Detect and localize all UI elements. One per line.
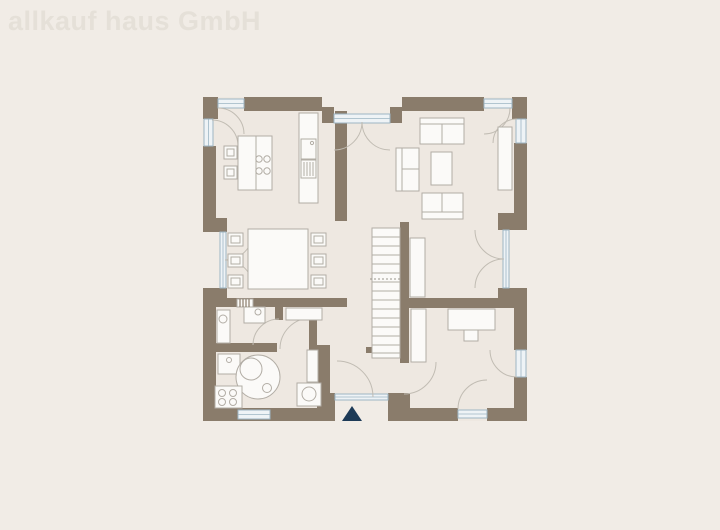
wall-bottom-office-right: [487, 408, 527, 421]
wall-left-lower: [203, 301, 216, 421]
wall-kitchen-right: [335, 111, 347, 221]
wall-step-top-center-left: [322, 107, 334, 123]
dishwasher: [301, 160, 316, 178]
dining-area: [228, 229, 326, 289]
wall-right-upper: [514, 143, 527, 213]
wall-left-upper: [203, 146, 216, 218]
wall-office-left-stub: [400, 393, 409, 408]
wall-utility-bottom: [216, 343, 277, 352]
washing-machine: [297, 383, 321, 406]
stair-section-marker: [366, 347, 372, 353]
radiator: [307, 350, 318, 382]
office-desk: [448, 309, 495, 330]
wall-top-right: [402, 97, 484, 111]
wall-stairs-right: [400, 222, 409, 363]
wall-corner-top-right: [512, 97, 527, 119]
dining-table: [248, 229, 308, 289]
wall-post-left-upper: [203, 218, 227, 232]
sideboard: [498, 127, 512, 190]
wall-office-top: [409, 298, 527, 308]
hall-cabinet: [410, 238, 425, 297]
wall-post-right-upper: [498, 213, 527, 230]
wall-utility-right-stub: [275, 307, 283, 320]
bar-stool: [224, 146, 237, 159]
coffee-table: [431, 152, 452, 185]
utility-washer: [244, 307, 265, 323]
stair-body: [372, 228, 400, 358]
office-chair: [464, 330, 478, 341]
wall-step-top-center-right: [390, 107, 402, 123]
kitchen-island: [238, 136, 272, 190]
staircase: [370, 228, 402, 358]
floor-plan-canvas: allkauf haus GmbH: [0, 0, 720, 530]
bar-stool: [224, 166, 237, 179]
utility-counter: [286, 308, 322, 320]
wall-bath-door-stub: [309, 320, 317, 352]
office-wardrobe: [411, 309, 426, 362]
wall-bottom-office-left: [400, 408, 458, 421]
wall-right-office-upper: [514, 308, 527, 350]
wall-corner-top-left: [203, 97, 218, 119]
wall-utility-top: [216, 298, 347, 307]
floor-plan-drawing: [0, 0, 720, 530]
wall-top-left: [244, 97, 322, 111]
